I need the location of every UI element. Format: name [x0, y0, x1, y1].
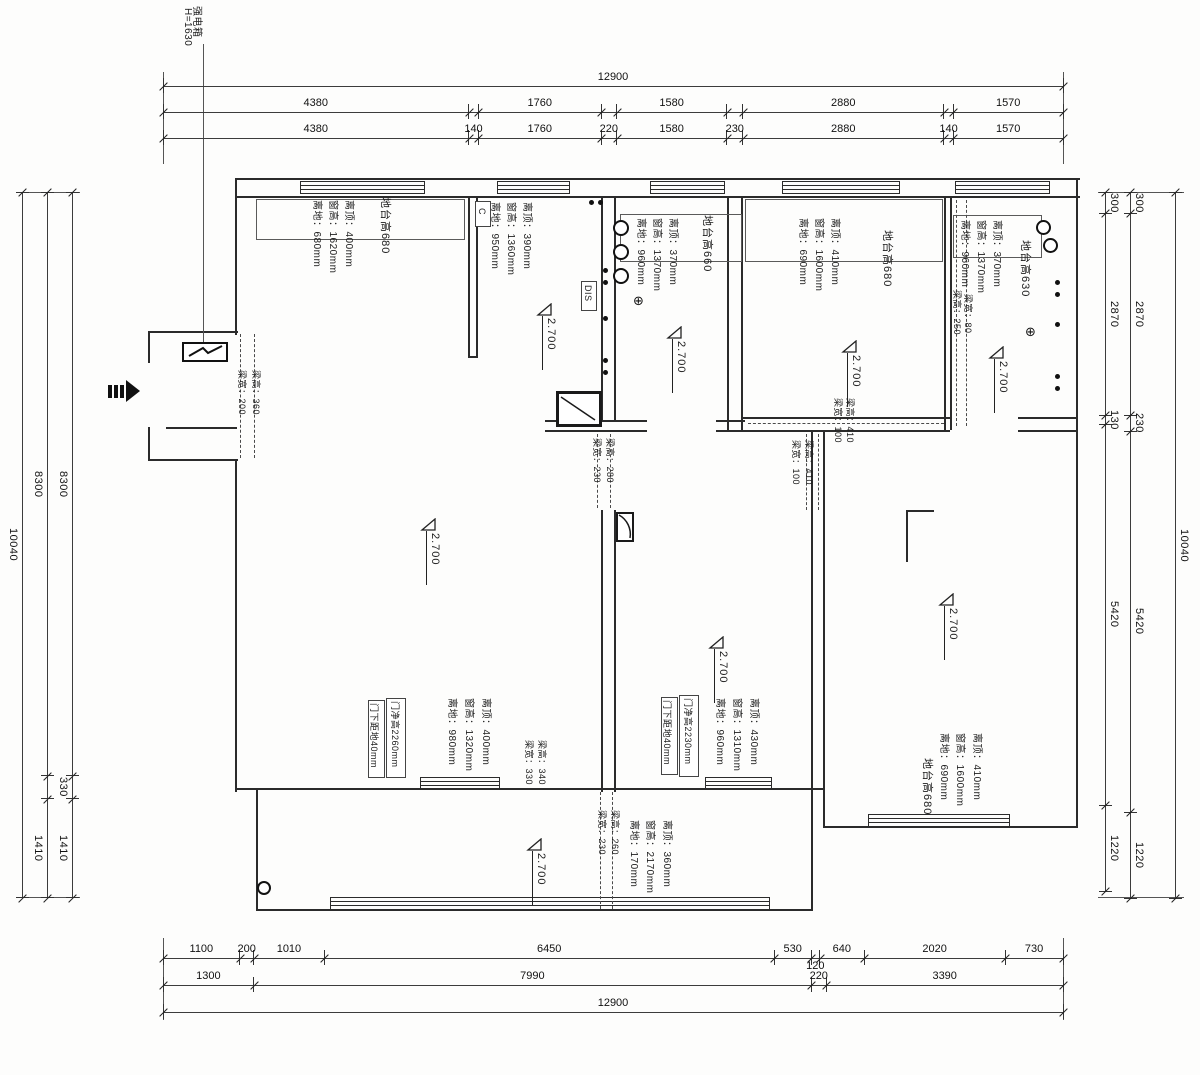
- door-spec: 门净高2230mm: [682, 698, 695, 765]
- dim-label: 12900: [598, 71, 629, 83]
- dim-label: 1570: [996, 123, 1020, 135]
- floor-plan: 梁宽：200 梁高：360 梁宽：230 梁高：280 梁高：250 梁宽：80…: [0, 0, 1200, 1075]
- window-band: [420, 777, 500, 790]
- ceiling-flag-icon: [420, 518, 437, 531]
- wall: [944, 198, 946, 430]
- window-band: [330, 897, 770, 910]
- ceiling-marker-line: [542, 316, 543, 370]
- socket-dot: [603, 268, 608, 273]
- window-band: [868, 814, 1010, 827]
- dim-label: 4380: [304, 97, 328, 109]
- dim-label: 2880: [831, 97, 855, 109]
- window-spec: 离顶：370mm: [991, 220, 1006, 287]
- window-spec: 离地：960mm: [714, 698, 729, 765]
- window-spec: 窗高：1600mm: [813, 218, 828, 291]
- dim-label: 330: [57, 777, 69, 797]
- socket-dot: [589, 200, 594, 205]
- wall: [823, 432, 825, 828]
- window-spec: 离地：960mm: [959, 220, 974, 287]
- dim-label: 3390: [932, 970, 956, 982]
- ceiling-flag-icon: [536, 303, 553, 316]
- dimension-line: [163, 958, 1063, 959]
- ceiling-marker-line: [994, 359, 995, 413]
- dim-label: 2870: [1133, 301, 1145, 327]
- floor-drain-circle: [257, 881, 271, 895]
- dim-label: 1220: [1108, 835, 1120, 861]
- wall: [235, 178, 237, 335]
- ceiling-height-value: 2.700: [675, 341, 687, 374]
- window-spec: 离顶：410mm: [829, 218, 844, 285]
- wall: [1076, 178, 1078, 828]
- dim-label: 640: [833, 943, 851, 955]
- lightning-icon: [184, 344, 226, 360]
- dimension-line: [47, 192, 48, 898]
- dim-label: 140: [464, 123, 482, 135]
- window-band: [497, 181, 570, 194]
- ceiling-height-value: 2.700: [545, 318, 557, 351]
- window-band: [650, 181, 725, 194]
- window-spec: 离顶：400mm: [343, 200, 358, 267]
- socket-dot: [603, 316, 608, 321]
- window-spec: 离顶：410mm: [971, 733, 986, 800]
- dim-label: 10040: [7, 528, 19, 561]
- dim-label: 1410: [32, 835, 44, 861]
- door-symbol: [556, 391, 602, 427]
- window-band: [300, 181, 425, 194]
- socket-dot: [1055, 386, 1060, 391]
- window-spec: 离地：690mm: [938, 733, 953, 800]
- wall: [1018, 417, 1078, 419]
- wall: [601, 198, 603, 422]
- wall: [235, 178, 1080, 180]
- window-band: [955, 181, 1050, 194]
- dimension-line: [1105, 192, 1106, 891]
- arrow-bar: [114, 385, 118, 398]
- socket-dot: [1055, 374, 1060, 379]
- dim-label: 200: [238, 943, 256, 955]
- ceiling-marker-line: [847, 353, 848, 407]
- dim-label: 7990: [520, 970, 544, 982]
- burner-circle: [613, 220, 629, 236]
- door-spec: 门下距地40mm: [368, 703, 381, 768]
- beam-label: 梁高：280: [604, 438, 617, 483]
- wall: [1018, 430, 1078, 432]
- arrow-bar: [108, 385, 112, 398]
- window-spec: 离地：980mm: [446, 698, 461, 765]
- dim-label: 1760: [528, 123, 552, 135]
- window-spec: 窗高：2170mm: [644, 820, 659, 893]
- beam-label: 梁宽：330: [523, 740, 536, 785]
- dim-label: 300: [1133, 193, 1145, 213]
- beam-label: 梁高：410: [844, 398, 857, 443]
- beam-label: 梁高：260: [609, 810, 622, 855]
- dimension-line: [1175, 192, 1176, 898]
- dim-label: 130: [1108, 410, 1120, 430]
- panel-label: 强电箱: [191, 6, 206, 38]
- dim-label: 8300: [57, 471, 69, 497]
- dim-label: 1010: [277, 943, 301, 955]
- dim-label: 220: [600, 123, 618, 135]
- wall: [468, 356, 478, 358]
- ceiling-height-value: 2.700: [997, 361, 1009, 394]
- dim-label: 2880: [831, 123, 855, 135]
- socket-dot: [1055, 322, 1060, 327]
- dim-label: 1580: [659, 123, 683, 135]
- window-spec: 离顶：360mm: [661, 820, 676, 887]
- window-spec: 离地：680mm: [311, 200, 326, 267]
- dimension-line: [22, 192, 23, 898]
- beam-label: 梁宽：100: [790, 440, 803, 485]
- beam-label: 梁宽：200: [236, 370, 249, 415]
- socket-dot: [1055, 292, 1060, 297]
- dim-label: 6450: [537, 943, 561, 955]
- dimension-line: [163, 138, 1063, 139]
- ceiling-height-value: 2.700: [535, 853, 547, 886]
- socket-dot: [598, 200, 603, 205]
- ceiling-flag-icon: [526, 838, 543, 851]
- wall: [150, 331, 238, 333]
- dim-label: 1580: [659, 97, 683, 109]
- dim-label: 230: [1133, 413, 1145, 433]
- dimension-line: [1130, 192, 1131, 898]
- dim-label: 5420: [1108, 601, 1120, 627]
- burner-circle: [613, 268, 629, 284]
- burner-circle: [613, 244, 629, 260]
- wall: [235, 196, 1080, 198]
- dim-label: 1220: [1133, 842, 1145, 868]
- ceiling-marker-line: [532, 851, 533, 905]
- dim-label: 2870: [1108, 301, 1120, 327]
- ceiling-marker-line: [426, 531, 427, 585]
- arrow-head: [126, 380, 140, 402]
- fixture-box-label: C: [477, 208, 487, 215]
- window-spec: 离地：960mm: [635, 218, 650, 285]
- dimension-line: [72, 192, 73, 898]
- dimension-line: [163, 1012, 1063, 1013]
- window-band: [782, 181, 900, 194]
- power-symbol-icon: ⊕: [633, 294, 644, 307]
- door-swing-symbol: [616, 512, 634, 542]
- ceiling-flag-icon: [841, 340, 858, 353]
- dim-label: 8300: [32, 471, 44, 497]
- window-callout-box: [745, 199, 943, 262]
- wall: [545, 430, 647, 432]
- dimension-line: [163, 985, 1063, 986]
- socket-dot: [603, 358, 608, 363]
- dim-label: 300: [1108, 193, 1120, 213]
- wall: [468, 198, 470, 358]
- wall: [148, 459, 238, 461]
- wall: [906, 510, 934, 512]
- door-spec: 门净高2260mm: [389, 701, 402, 768]
- ceiling-height-value: 2.700: [717, 651, 729, 684]
- wall: [256, 790, 258, 911]
- dim-label: 12900: [598, 997, 629, 1009]
- beam-label: 梁高：340: [536, 740, 549, 785]
- dim-label: 230: [726, 123, 744, 135]
- ceiling-flag-icon: [708, 636, 725, 649]
- socket-dot: [603, 370, 608, 375]
- platform-label: 地台高660: [700, 215, 716, 272]
- wall: [148, 331, 150, 363]
- window-spec: 离顶：430mm: [748, 698, 763, 765]
- door-spec: 门下距地40mm: [661, 700, 674, 765]
- platform-label: 地台高630: [1018, 240, 1034, 297]
- door-leaf-icon: [559, 394, 599, 424]
- dim-label: 1100: [190, 943, 214, 955]
- arrow-bar: [120, 385, 124, 398]
- ceiling-height-value: 2.700: [850, 355, 862, 388]
- beam-label: 梁宽：80: [962, 294, 975, 334]
- window-spec: 窗高：1360mm: [505, 202, 520, 275]
- beam-label: 梁高：410: [803, 440, 816, 485]
- fixture-circle: [1043, 238, 1058, 253]
- ceiling-marker-line: [672, 339, 673, 393]
- entry-arrow-icon: [108, 380, 142, 402]
- door-arc-icon: [618, 514, 632, 540]
- dim-label: 1760: [528, 97, 552, 109]
- window-spec: 窗高：1620mm: [327, 200, 342, 273]
- window-spec: 离顶：390mm: [521, 202, 536, 269]
- wall: [906, 510, 908, 562]
- dim-label: 5420: [1133, 608, 1145, 634]
- platform-label: 地台高680: [378, 197, 394, 254]
- window-spec: 离地：950mm: [489, 202, 504, 269]
- window-spec: 窗高：1370mm: [651, 218, 666, 291]
- dim-label: 1300: [196, 970, 220, 982]
- window-spec: 窗高：1320mm: [463, 698, 478, 771]
- ceiling-flag-icon: [666, 326, 683, 339]
- dim-label: 220: [810, 970, 828, 982]
- power-symbol-icon: ⊕: [1025, 325, 1036, 338]
- socket-dot: [1055, 280, 1060, 285]
- dimension-line: [163, 112, 1063, 113]
- window-spec: 离顶：400mm: [480, 698, 495, 765]
- dim-label: 530: [783, 943, 801, 955]
- window-spec: 窗高：1600mm: [954, 733, 969, 806]
- dis-label: DIS: [583, 285, 593, 302]
- wall: [166, 427, 237, 429]
- panel-height-label: H=1630: [182, 8, 193, 46]
- panel-leader-line: [203, 44, 204, 344]
- ceiling-marker-line: [714, 649, 715, 703]
- dim-label: 10040: [1178, 529, 1190, 562]
- dim-label: 1410: [57, 835, 69, 861]
- dim-label: 2020: [922, 943, 946, 955]
- ceiling-height-value: 2.700: [947, 608, 959, 641]
- window-callout-box: [256, 199, 465, 240]
- dim-label: 140: [939, 123, 957, 135]
- beam-label: 梁高：360: [250, 370, 263, 415]
- ceiling-flag-icon: [988, 346, 1005, 359]
- ceiling-flag-icon: [938, 593, 955, 606]
- window-spec: 离地：170mm: [628, 820, 643, 887]
- window-spec: 离地：690mm: [797, 218, 812, 285]
- wall: [811, 432, 813, 911]
- wall: [601, 510, 603, 792]
- dim-label: 1570: [996, 97, 1020, 109]
- window-band: [705, 777, 772, 790]
- wall: [148, 427, 150, 461]
- dim-label: 730: [1025, 943, 1043, 955]
- wall: [235, 459, 237, 792]
- dim-label: 4380: [304, 123, 328, 135]
- platform-label: 地台高680: [920, 758, 936, 815]
- platform-label: 地台高680: [880, 230, 896, 287]
- power-panel-box: [182, 342, 228, 362]
- window-spec: 窗高：1370mm: [975, 220, 990, 293]
- window-spec: 窗高：1310mm: [731, 698, 746, 771]
- ceiling-marker-line: [944, 606, 945, 660]
- beam-line: [818, 434, 819, 510]
- beam-label: 梁宽：230: [596, 810, 609, 855]
- ceiling-height-value: 2.700: [429, 533, 441, 566]
- beam-label: 梁宽：230: [591, 438, 604, 483]
- fixture-circle: [1036, 220, 1051, 235]
- dimension-line: [163, 86, 1063, 87]
- window-spec: 离顶：370mm: [667, 218, 682, 285]
- wall: [614, 510, 616, 792]
- socket-dot: [603, 280, 608, 285]
